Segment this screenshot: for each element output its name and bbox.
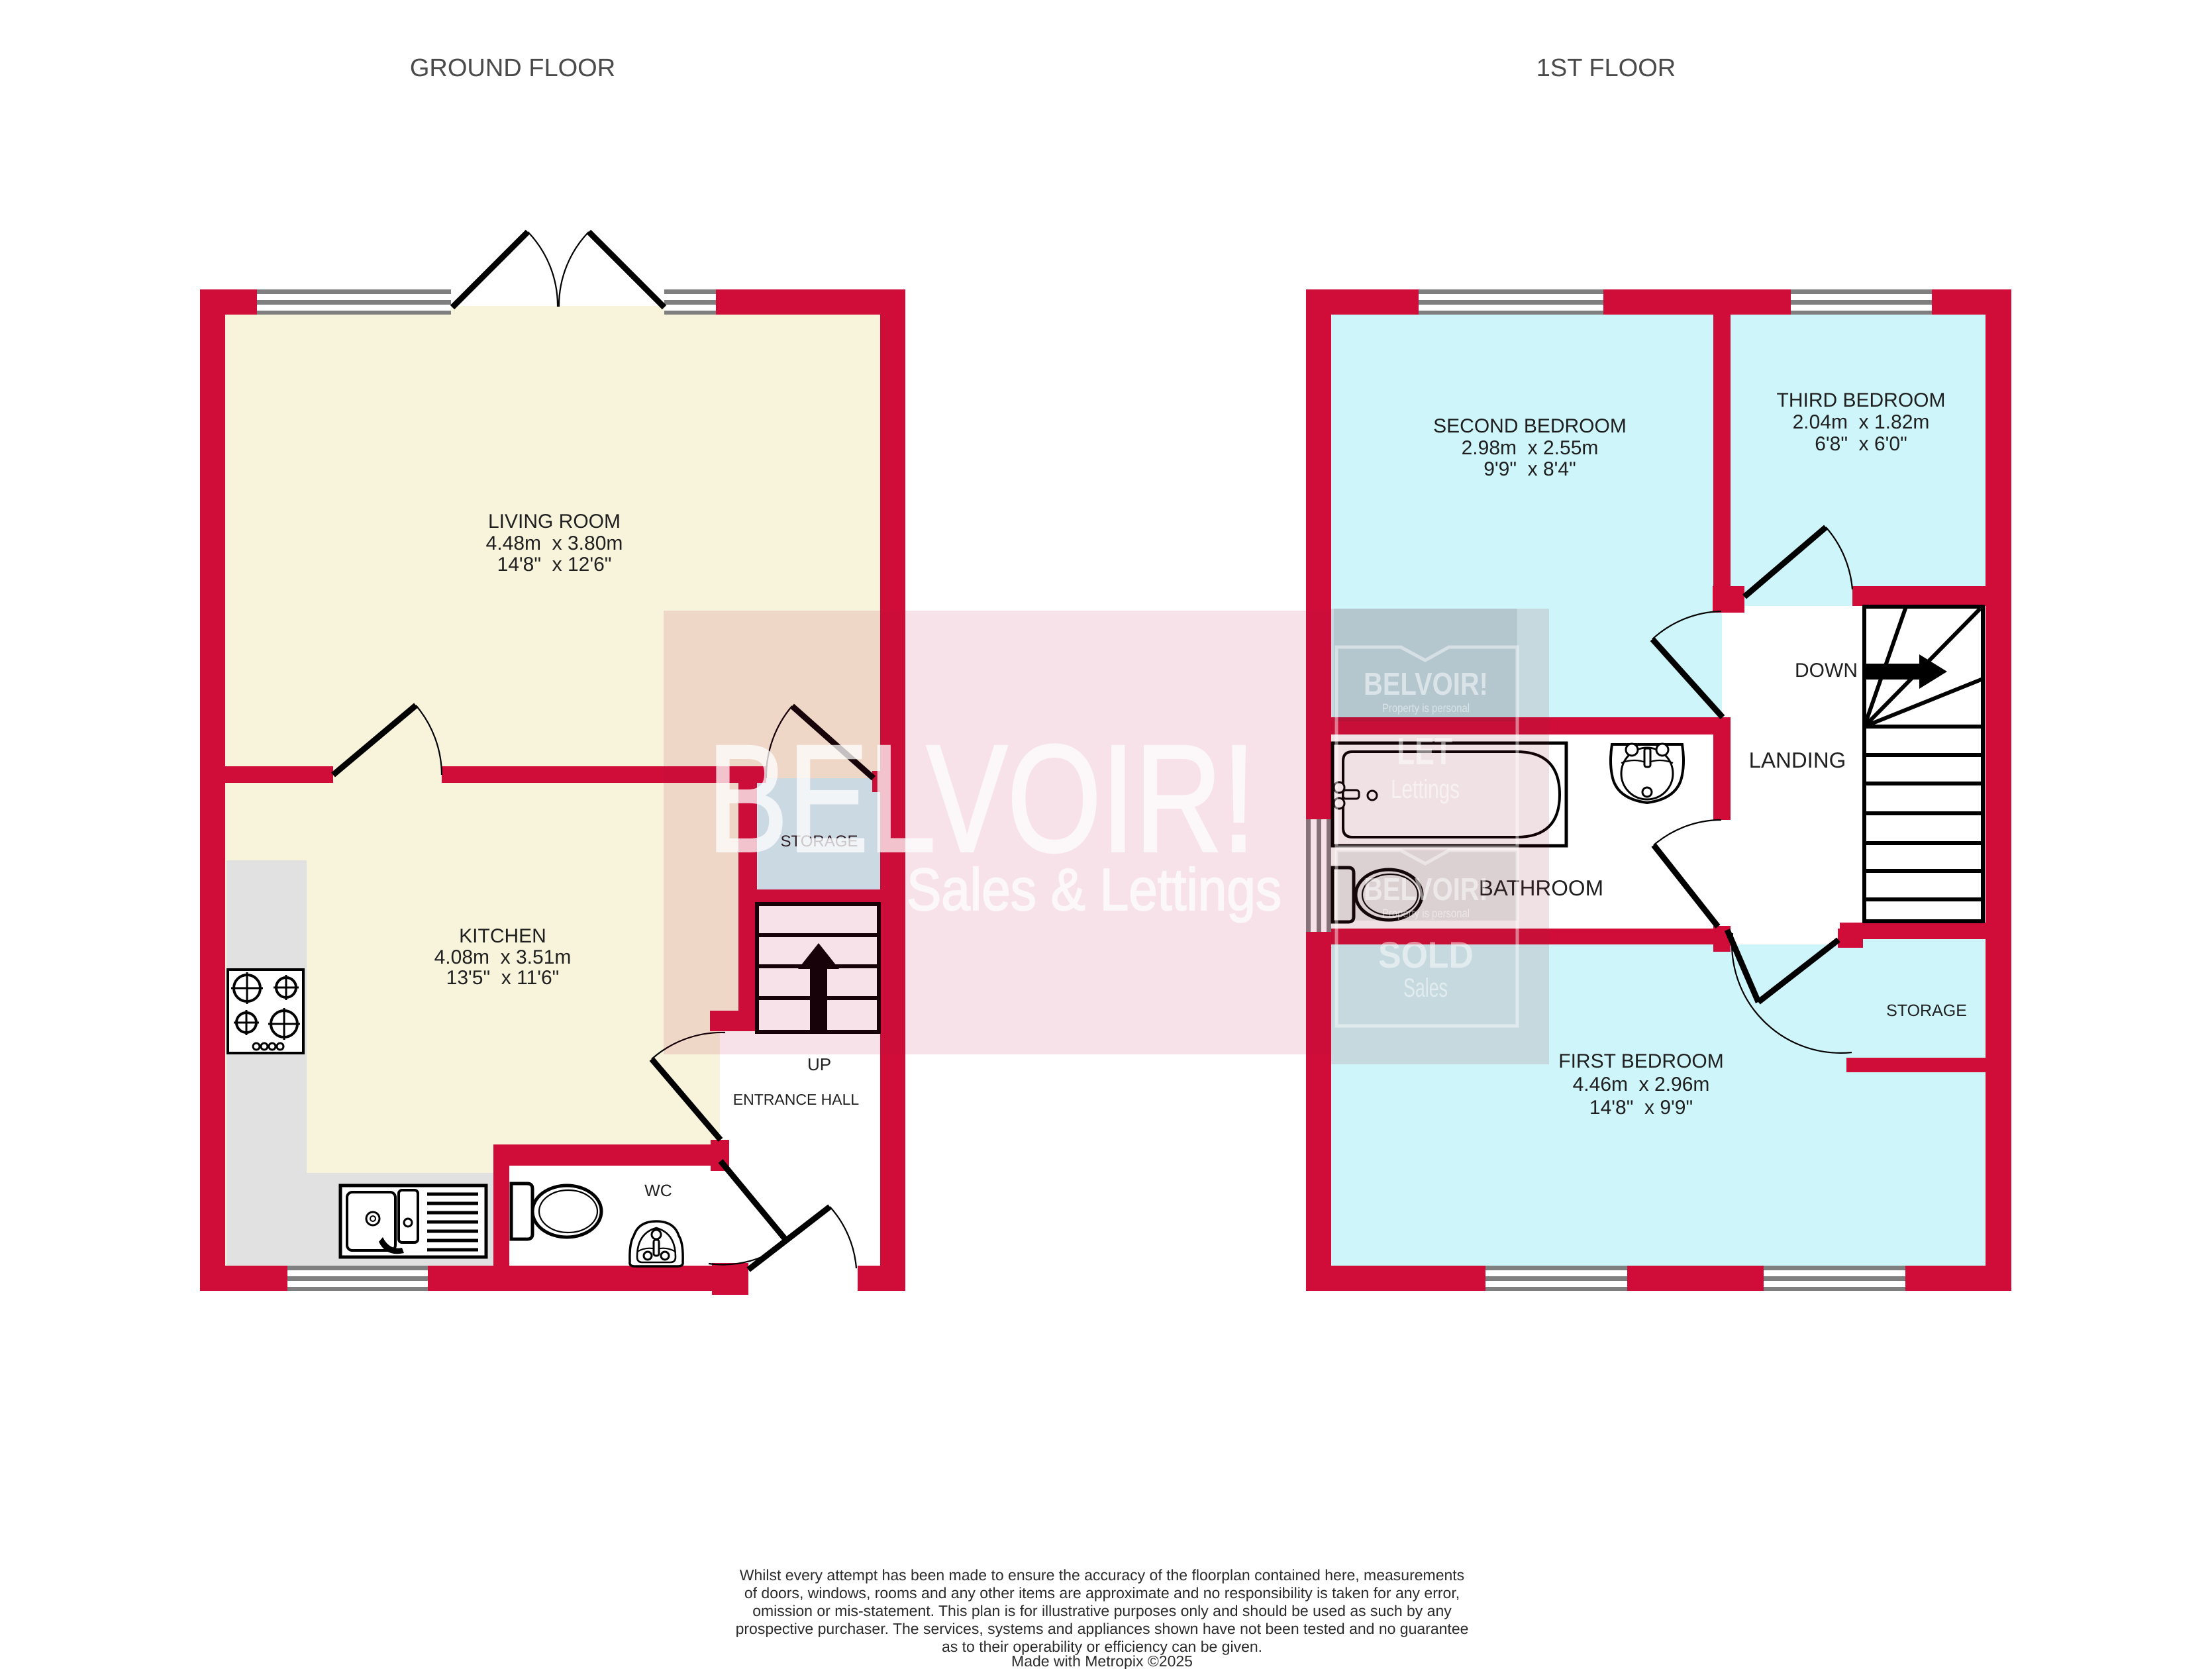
svg-text:SOLD: SOLD [1378,934,1474,976]
svg-text:FIRST BEDROOM: FIRST BEDROOM [1558,1050,1723,1072]
svg-text:KITCHEN: KITCHEN [459,925,546,947]
svg-text:2.04m x 1.82m: 2.04m x 1.82m [1793,411,1930,433]
svg-text:13'5" x 11'6": 13'5" x 11'6" [446,967,560,989]
svg-text:14'8" x 12'6": 14'8" x 12'6" [497,554,612,576]
svg-text:LANDING: LANDING [1749,748,1846,772]
svg-text:Whilst every attempt has been: Whilst every attempt has been made to en… [740,1566,1464,1584]
svg-text:DOWN: DOWN [1795,660,1858,682]
svg-text:Property is personal: Property is personal [1382,701,1470,715]
svg-text:UP: UP [807,1054,831,1074]
svg-text:4.46m x 2.96m: 4.46m x 2.96m [1573,1074,1710,1095]
svg-text:2.98m x 2.55m: 2.98m x 2.55m [1462,437,1599,459]
svg-text:Property is personal: Property is personal [1382,907,1470,920]
svg-text:LIVING ROOM: LIVING ROOM [488,511,621,532]
svg-text:STORAGE: STORAGE [1886,1001,1967,1020]
svg-text:Made with Metropix ©2025: Made with Metropix ©2025 [1011,1652,1193,1669]
svg-text:4.08m x 3.51m: 4.08m x 3.51m [434,946,572,968]
svg-text:Sales & Lettings: Sales & Lettings [907,857,1282,923]
svg-text:9'9" x 8'4": 9'9" x 8'4" [1483,458,1576,480]
svg-text:prospective purchaser. The ser: prospective purchaser. The services, sys… [736,1620,1469,1637]
svg-text:THIRD BEDROOM: THIRD BEDROOM [1777,389,1946,411]
svg-text:BELVOIR!: BELVOIR! [1364,667,1488,702]
svg-text:Sales: Sales [1403,974,1448,1003]
svg-text:SECOND BEDROOM: SECOND BEDROOM [1433,415,1627,437]
svg-text:WC: WC [644,1182,672,1200]
svg-text:4.48m x 3.80m: 4.48m x 3.80m [486,532,623,554]
svg-text:LET: LET [1397,730,1452,773]
svg-text:omission or mis-statement. Thi: omission or mis-statement. This plan is … [752,1602,1452,1619]
svg-text:Lettings: Lettings [1391,775,1460,804]
svg-text:1ST FLOOR: 1ST FLOOR [1536,54,1676,82]
svg-text:of doors, windows, rooms and a: of doors, windows, rooms and any other i… [744,1584,1460,1601]
svg-text:14'8" x 9'9": 14'8" x 9'9" [1589,1097,1693,1119]
svg-text:ENTRANCE HALL: ENTRANCE HALL [733,1091,860,1108]
svg-text:6'8" x 6'0": 6'8" x 6'0" [1815,433,1907,455]
svg-text:GROUND FLOOR: GROUND FLOOR [410,54,615,82]
svg-text:BELVOIR!: BELVOIR! [1364,872,1488,907]
